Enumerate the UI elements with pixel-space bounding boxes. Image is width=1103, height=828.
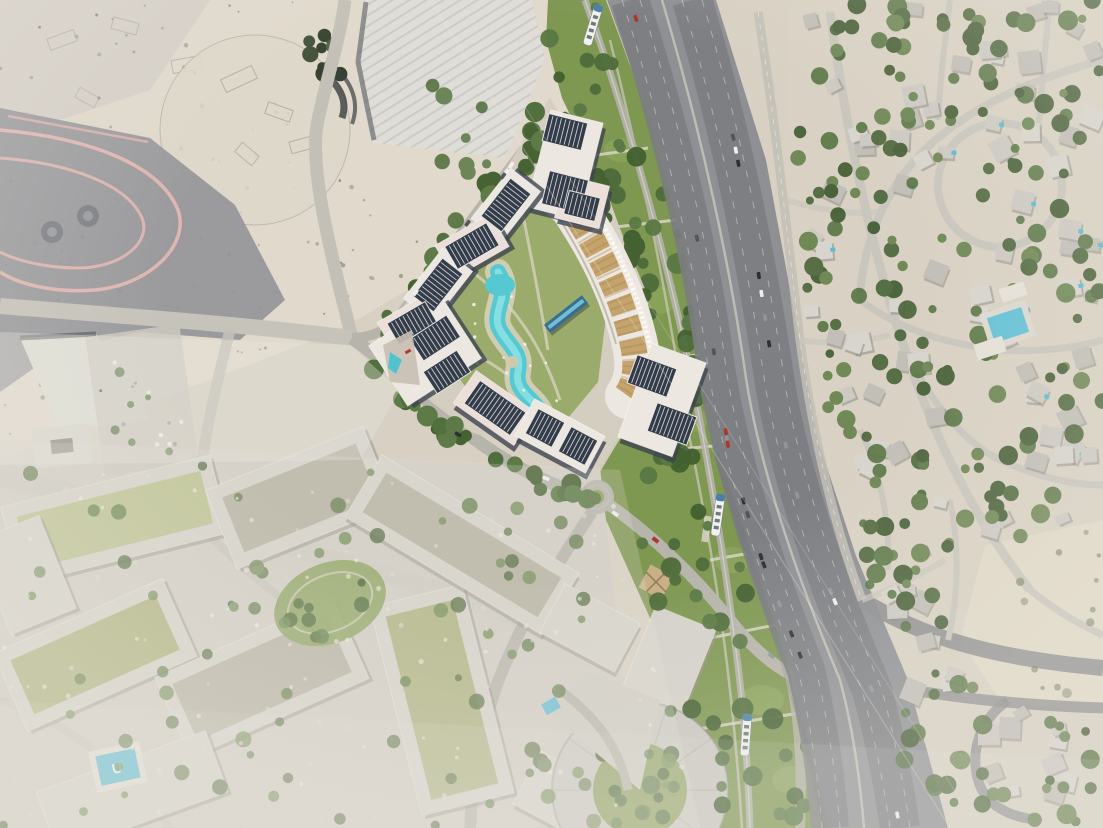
focus-vignette (0, 0, 1103, 828)
aerial-masterplan-view: U (0, 0, 1103, 828)
satellite-render: U (0, 0, 1103, 828)
atmosphere (0, 0, 1103, 828)
